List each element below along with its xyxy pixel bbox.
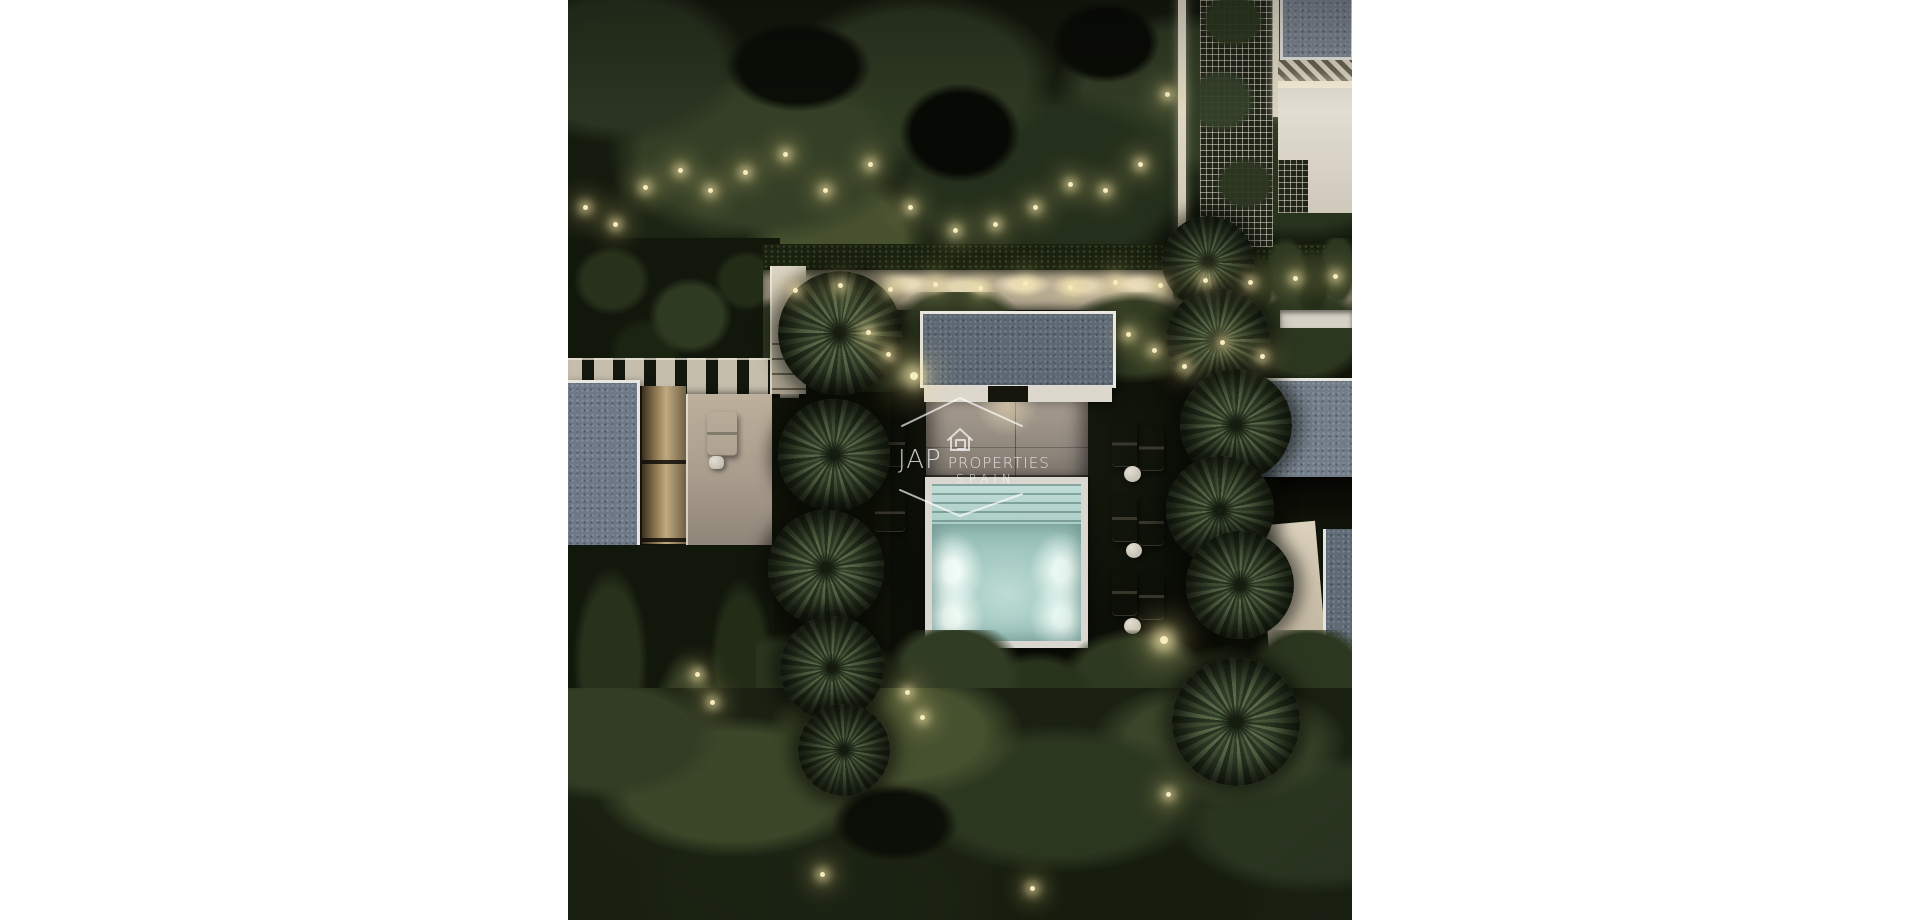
garden-light (910, 372, 918, 380)
garden-light (838, 283, 843, 288)
garden-light (1248, 280, 1253, 285)
brand-word-text: PROPERTIES (948, 454, 1050, 472)
logo-chevron (900, 490, 1022, 516)
garden-light (710, 700, 715, 705)
garden-light (993, 222, 998, 227)
garden-light (743, 170, 748, 175)
garden-light (613, 222, 618, 227)
garden-light (1068, 285, 1073, 290)
garden-light (1260, 354, 1265, 359)
garden-light (1166, 792, 1171, 797)
watermark: JAP PROPERTIES SPAIN (886, 390, 1126, 530)
garden-light (583, 205, 588, 210)
watermark-graphic: JAP PROPERTIES SPAIN (886, 390, 1126, 530)
garden-light (1030, 886, 1035, 891)
logo-roofline (902, 398, 1022, 426)
garden-light (1293, 276, 1298, 281)
garden-light (1033, 205, 1038, 210)
garden-light (783, 152, 788, 157)
garden-light (933, 282, 938, 287)
garden-light (678, 168, 683, 173)
garden-light (1165, 92, 1170, 97)
house-logo-icon (948, 429, 972, 450)
page-background: JAP PROPERTIES SPAIN (0, 0, 1920, 920)
garden-light (1103, 188, 1108, 193)
garden-light (793, 288, 798, 293)
brand-text: JAP (898, 445, 942, 475)
garden-light (1113, 280, 1118, 285)
garden-light (708, 188, 713, 193)
garden-light (953, 228, 958, 233)
region-text: SPAIN (956, 472, 1016, 486)
garden-light (1220, 340, 1225, 345)
garden-light (1068, 182, 1073, 187)
garden-light (1023, 281, 1028, 286)
property-render-image: JAP PROPERTIES SPAIN (568, 0, 1352, 920)
palm-tree (1154, 640, 1318, 804)
garden-light (695, 672, 700, 677)
garden-light (920, 715, 925, 720)
garden-light (908, 205, 913, 210)
garden-light (868, 162, 873, 167)
garden-light (1126, 332, 1131, 337)
garden-light (820, 872, 825, 877)
garden-light (1203, 278, 1208, 283)
garden-light (1158, 283, 1163, 288)
palm-tree (764, 506, 888, 630)
garden-light (886, 352, 891, 357)
garden-light (866, 330, 871, 335)
garden-light (905, 690, 910, 695)
garden-light (888, 287, 893, 292)
garden-light (978, 286, 983, 291)
garden-light (823, 188, 828, 193)
garden-light (643, 185, 648, 190)
garden-light (1182, 364, 1187, 369)
garden-light (1138, 162, 1143, 167)
garden-light (1152, 348, 1157, 353)
garden-light (1333, 274, 1338, 279)
garden-light (1160, 636, 1168, 644)
